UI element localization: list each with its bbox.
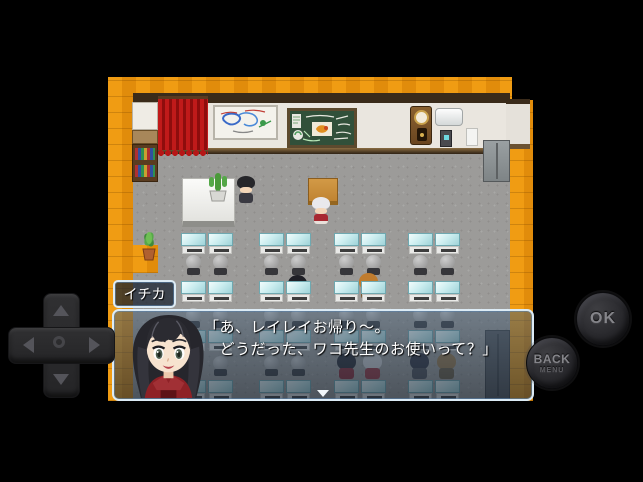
dialogue-text: 「あ、レイレイお帰り〜。 どうだった、ワコ先生のお使いって？」 — [204, 317, 529, 361]
dpad-down-icon[interactable] — [53, 374, 69, 385]
dpad-control[interactable] — [8, 293, 115, 398]
desk — [208, 233, 233, 254]
dpad-left-icon[interactable] — [23, 337, 34, 353]
desk — [286, 281, 311, 302]
chair — [412, 255, 429, 277]
back-button[interactable]: BACK MENU — [526, 337, 578, 389]
desk — [259, 233, 284, 254]
desk — [361, 281, 386, 302]
dpad-right-icon[interactable] — [89, 337, 100, 353]
dialogue-line: どうだった、ワコ先生のお使いって？」 — [204, 339, 529, 361]
desk — [181, 281, 206, 302]
continue-indicator-icon — [317, 390, 329, 397]
chair — [439, 255, 456, 277]
game-viewport[interactable]: イチカ — [108, 77, 537, 401]
desk — [334, 281, 359, 302]
chair — [290, 255, 307, 277]
dialogue-line: 「あ、レイレイお帰り〜。 — [204, 317, 529, 339]
desk — [286, 233, 311, 254]
desk — [435, 233, 460, 254]
chair — [338, 255, 355, 277]
back-button-label: BACK — [534, 352, 571, 366]
dialogue-window[interactable]: 「あ、レイレイお帰り〜。 どうだった、ワコ先生のお使いって？」 — [112, 309, 534, 401]
chair — [212, 255, 229, 277]
dpad-center-icon — [53, 336, 65, 348]
desk — [259, 281, 284, 302]
desk — [435, 281, 460, 302]
desk — [208, 281, 233, 302]
desk — [408, 233, 433, 254]
device-screen: イチカ — [0, 0, 643, 482]
player-character — [311, 197, 331, 226]
desk — [408, 281, 433, 302]
desk — [181, 233, 206, 254]
desk — [334, 233, 359, 254]
desk — [361, 233, 386, 254]
npc-dark-hair — [236, 176, 256, 205]
chair — [263, 255, 280, 277]
dpad-up-icon[interactable] — [53, 305, 69, 316]
menu-button-label: MENU — [540, 367, 565, 374]
ok-button[interactable]: OK — [576, 292, 630, 346]
chair — [185, 255, 202, 277]
speaker-nametag: イチカ — [113, 280, 176, 308]
